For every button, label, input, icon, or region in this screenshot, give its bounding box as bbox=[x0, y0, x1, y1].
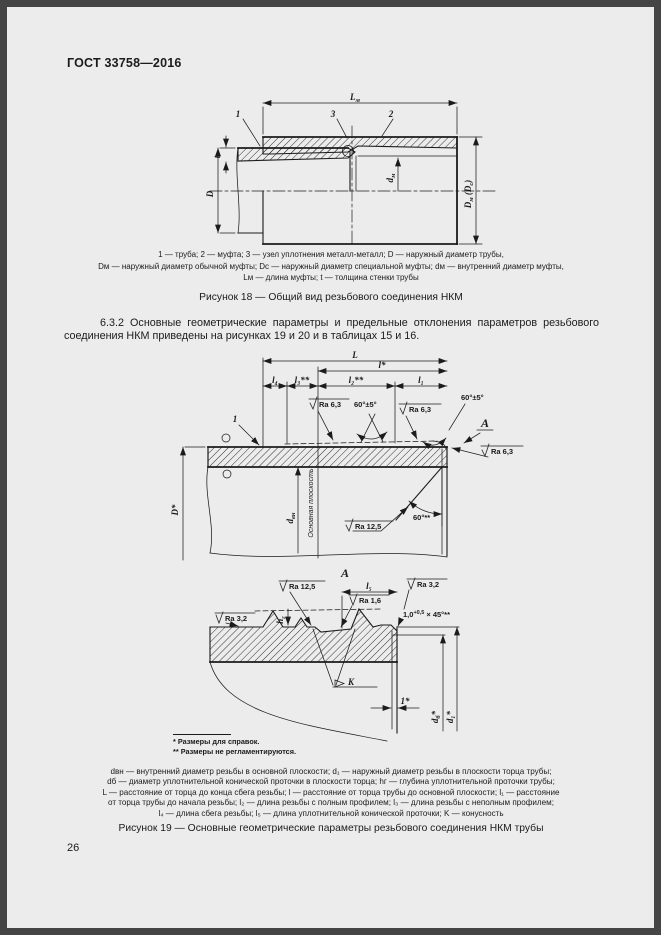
page-number: 26 bbox=[67, 842, 79, 854]
fig19l-roughness-3-2-left: Ra 3,2 bbox=[225, 614, 247, 623]
fig19u-dim-L: L bbox=[351, 350, 358, 360]
fig19u-dim-l1: l₁ bbox=[418, 375, 424, 385]
fig19u-roughness-12-5: Ra 12,5 bbox=[355, 522, 381, 531]
footnote-rule bbox=[173, 734, 231, 735]
fig18-title: Рисунок 18 — Общий вид резьбового соедин… bbox=[64, 292, 598, 303]
fig19l-dim-db: dб* bbox=[430, 710, 442, 723]
fig19-legend-line3: L — расстояние от торца до конца сбега р… bbox=[64, 788, 598, 798]
fig19l-roughness-1-6: Ra 1,6 bbox=[359, 596, 381, 605]
section-6-3-2-paragraph: 6.3.2 Основные геометрические параметры … bbox=[64, 317, 599, 343]
document-header: ГОСТ 33758—2016 bbox=[67, 56, 182, 70]
leader-circle bbox=[223, 470, 231, 478]
fig18-caption-line3: Lм — длина муфты; t — толщина стенки тру… bbox=[64, 272, 598, 284]
fig19-legend-line4: от торца трубы до начала резьбы; l₂ — дл… bbox=[64, 798, 598, 808]
fig18-caption-line2: Dм — наружный диаметр обычной муфты; Dс … bbox=[64, 261, 598, 273]
fig18-dim-t: t bbox=[212, 155, 222, 158]
footnotes: * Размеры для справок. ** Размеры не рег… bbox=[173, 737, 296, 756]
fig18-dim-dm: dм bbox=[385, 173, 397, 183]
fig19u-angle-60: 60°** bbox=[413, 513, 430, 522]
fig19u-basic-plane: Основная плоскость bbox=[308, 468, 315, 537]
fig19u-dim-l2: l₂** bbox=[349, 375, 364, 385]
fig18-geometry bbox=[210, 126, 495, 246]
fig19-title: Рисунок 19 — Основные геометрические пар… bbox=[64, 823, 598, 834]
fig19u-roughness-2: Ra 6,3 bbox=[409, 405, 431, 414]
fig19l-dim-l5: l₅ bbox=[366, 581, 372, 591]
figure19-lower-drawing: А l₅ Ra 12,5 Ra 1,6 Ra 3,2 Ra 3,2 1,0+0,… bbox=[195, 565, 555, 737]
fig19l-view-title: А bbox=[340, 566, 349, 580]
fig19u-callout-1: 1 bbox=[233, 414, 238, 424]
fig18-dim-Dm-Ds: Dм (Dс) bbox=[463, 180, 475, 210]
fig19l-dim-d1: d₁* bbox=[445, 710, 455, 723]
fig19u-dim-D: D* bbox=[170, 504, 180, 516]
fig19u-dim-l: l* bbox=[378, 360, 386, 370]
fig18-dim-D: D bbox=[205, 190, 215, 198]
fig19u-angle-1: 60°±5° bbox=[354, 400, 377, 409]
fig19l-dim-1: 1* bbox=[401, 696, 411, 706]
fig19u-dim-l3: l₃** bbox=[295, 375, 310, 385]
fig19l-conicity-K: K bbox=[347, 677, 355, 687]
document-page: ГОСТ 33758—2016 bbox=[0, 0, 661, 935]
fig19l-chamfer-dim: 1,0+0,5 × 45°** bbox=[403, 610, 450, 619]
fig18-callout-1: 1 bbox=[236, 109, 241, 119]
fig19u-angle-2: 60°±5° bbox=[461, 393, 484, 402]
figure18-drawing: Lм 1 3 2 D t dм Dм (Dс) bbox=[172, 88, 507, 250]
fig19u-roughness-1: Ra 6,3 bbox=[319, 400, 341, 409]
fig19u-roughness-3: Ra 6,3 bbox=[491, 447, 513, 456]
fig19u-geometry bbox=[207, 414, 447, 558]
footnote-2: ** Размеры не регламентируются. bbox=[173, 747, 296, 757]
figure19-upper-drawing: L l* l₄ l₃** l₂** l₁ 1 Ra 6,3 60°±5° Ra … bbox=[163, 350, 608, 565]
fig19u-dim-l4: l₄ bbox=[272, 375, 278, 385]
fig19l-roughness-3-2-right: Ra 3,2 bbox=[417, 580, 439, 589]
fig18-dim-Lm: Lм bbox=[349, 92, 361, 104]
fig19-legend-line1: dвн — внутренний диаметр резьбы в основн… bbox=[64, 767, 598, 777]
fig19l-roughness-12-5: Ra 12,5 bbox=[289, 582, 315, 591]
fig18-caption-line1: 1 — труба; 2 — муфта; 3 — узел уплотнени… bbox=[64, 249, 598, 261]
fig19u-view-a-label: А bbox=[480, 416, 489, 430]
fig19-legend-line2: dб — диаметр уплотнительной конической п… bbox=[64, 777, 598, 787]
leader-circle bbox=[222, 434, 230, 442]
fig18-callout-3: 3 bbox=[330, 109, 336, 119]
fig18-callout-2: 2 bbox=[388, 109, 394, 119]
fig19l-geometry bbox=[210, 609, 397, 741]
fig19-legend-line5: l₄ — длина сбега резьбы; l₅ — длина упло… bbox=[64, 809, 598, 819]
fig19u-dim-dvn: dвн bbox=[285, 512, 297, 523]
footnote-1: * Размеры для справок. bbox=[173, 737, 296, 747]
fig19-legend: dвн — внутренний диаметр резьбы в основн… bbox=[64, 767, 598, 819]
fig18-caption: 1 — труба; 2 — муфта; 3 — узел уплотнени… bbox=[64, 249, 598, 284]
